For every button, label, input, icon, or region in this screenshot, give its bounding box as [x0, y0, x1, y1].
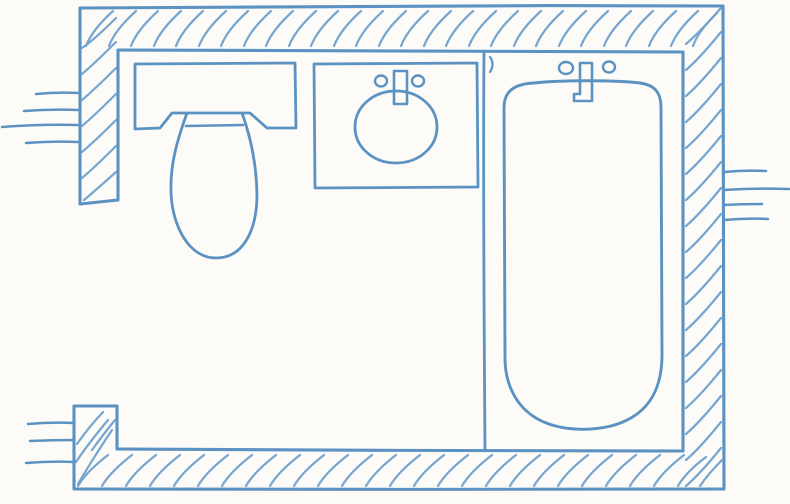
- service-lines-left-lower: [26, 423, 74, 463]
- wall-hatch-door-stub: [76, 412, 115, 484]
- tub-handle-left: [559, 62, 573, 74]
- sink-handle-left: [375, 76, 387, 87]
- wall-hatch-left: [82, 18, 116, 200]
- toilet-bowl-rim: [186, 125, 243, 126]
- wall-hatch-bottom: [78, 455, 722, 486]
- partition-wall: [484, 53, 485, 450]
- sink-handle-right: [412, 76, 424, 87]
- wall-hatch-top: [86, 11, 717, 46]
- sketch-page: [0, 0, 790, 504]
- wall-hatch-right: [686, 8, 721, 486]
- tub-handle-right: [603, 62, 615, 73]
- bathroom-floor-plan-sketch: [0, 0, 790, 504]
- sink-faucet: [394, 71, 407, 104]
- toilet-tank: [135, 63, 296, 129]
- wall-outline: [74, 6, 724, 490]
- service-lines-left-upper: [2, 93, 78, 143]
- toilet-bowl: [171, 113, 257, 258]
- sink-basin: [355, 91, 437, 163]
- service-lines-right: [724, 171, 789, 220]
- sink-counter: [314, 63, 478, 188]
- pen-mark-partition-top: [490, 57, 493, 72]
- sketch-layers: [2, 6, 789, 490]
- bathtub-outline: [504, 81, 662, 430]
